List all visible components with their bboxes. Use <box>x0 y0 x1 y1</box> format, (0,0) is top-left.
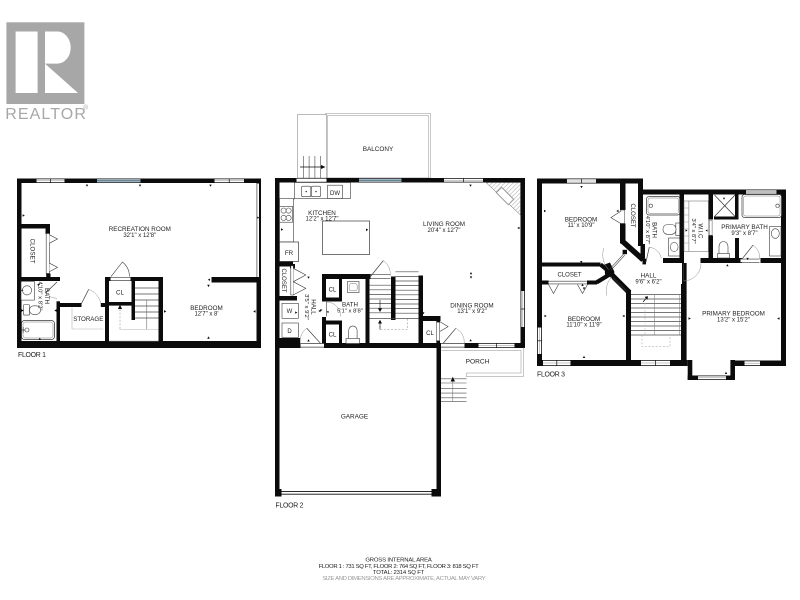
svg-text:CL: CL <box>329 288 337 294</box>
svg-text:STORAGE: STORAGE <box>73 316 103 323</box>
svg-text:GARAGE: GARAGE <box>341 414 368 421</box>
svg-text:FLOOR 3: FLOOR 3 <box>537 372 565 379</box>
svg-text:LIVING ROOM: LIVING ROOM <box>423 221 465 228</box>
svg-text:BALCONY: BALCONY <box>363 146 394 153</box>
svg-text:20'4" x 12'7": 20'4" x 12'7" <box>428 228 461 234</box>
svg-text:13'2" x 15'2": 13'2" x 15'2" <box>717 317 750 323</box>
svg-text:CLOSET: CLOSET <box>629 203 635 227</box>
svg-text:CL: CL <box>426 331 434 337</box>
svg-text:9'6" x 6'2": 9'6" x 6'2" <box>635 280 661 286</box>
svg-text:PORCH: PORCH <box>466 359 490 366</box>
svg-text:12'2" x 12'7": 12'2" x 12'7" <box>306 217 339 223</box>
svg-text:CLOSET: CLOSET <box>280 268 286 292</box>
svg-text:13'1" x 9'2": 13'1" x 9'2" <box>457 309 487 315</box>
svg-text:W: W <box>287 309 293 315</box>
svg-text:3'5" x 9'2": 3'5" x 9'2" <box>303 294 309 320</box>
svg-text:3'4" x 8'7": 3'4" x 8'7" <box>690 218 696 243</box>
svg-text:BATH: BATH <box>342 302 358 309</box>
svg-text:GROSS INTERNAL AREA: GROSS INTERNAL AREA <box>365 558 432 564</box>
svg-text:REALTOR: REALTOR <box>5 106 87 123</box>
svg-text:CL: CL <box>116 290 124 297</box>
svg-text:4'10" x 8'2": 4'10" x 8'2" <box>37 281 43 310</box>
svg-text:HALL: HALL <box>641 272 657 279</box>
svg-text:11' x 10'9": 11' x 10'9" <box>568 223 595 229</box>
svg-text:32'1" x 12'8": 32'1" x 12'8" <box>123 233 156 239</box>
svg-text:BATH: BATH <box>651 222 658 238</box>
svg-text:D: D <box>287 329 292 335</box>
svg-text:CLOSET: CLOSET <box>28 239 35 264</box>
svg-text:12'7" x 8': 12'7" x 8' <box>194 312 218 318</box>
svg-text:®: ® <box>83 104 88 112</box>
svg-text:9'3" x 8'7": 9'3" x 8'7" <box>731 231 757 237</box>
svg-text:11'10" x 11'9": 11'10" x 11'9" <box>566 323 601 329</box>
svg-text:DW: DW <box>330 191 340 197</box>
svg-text:5'1" x 8'8": 5'1" x 8'8" <box>337 309 363 315</box>
svg-text:W.I.C: W.I.C <box>697 224 704 239</box>
svg-text:SIZE AND DIMENSIONS ARE APPROX: SIZE AND DIMENSIONS ARE APPROXIMATE, ACT… <box>322 576 485 582</box>
svg-text:BATH: BATH <box>43 288 50 304</box>
svg-text:CLOSET: CLOSET <box>557 272 581 278</box>
svg-text:FLOOR 2: FLOOR 2 <box>276 502 304 509</box>
svg-text:4'10" x 8'7": 4'10" x 8'7" <box>644 216 650 245</box>
svg-text:FLOOR 1: FLOOR 1 <box>18 352 46 359</box>
svg-text:CL: CL <box>329 333 337 339</box>
svg-text:FR: FR <box>285 250 294 257</box>
svg-text:HALL: HALL <box>310 299 317 315</box>
